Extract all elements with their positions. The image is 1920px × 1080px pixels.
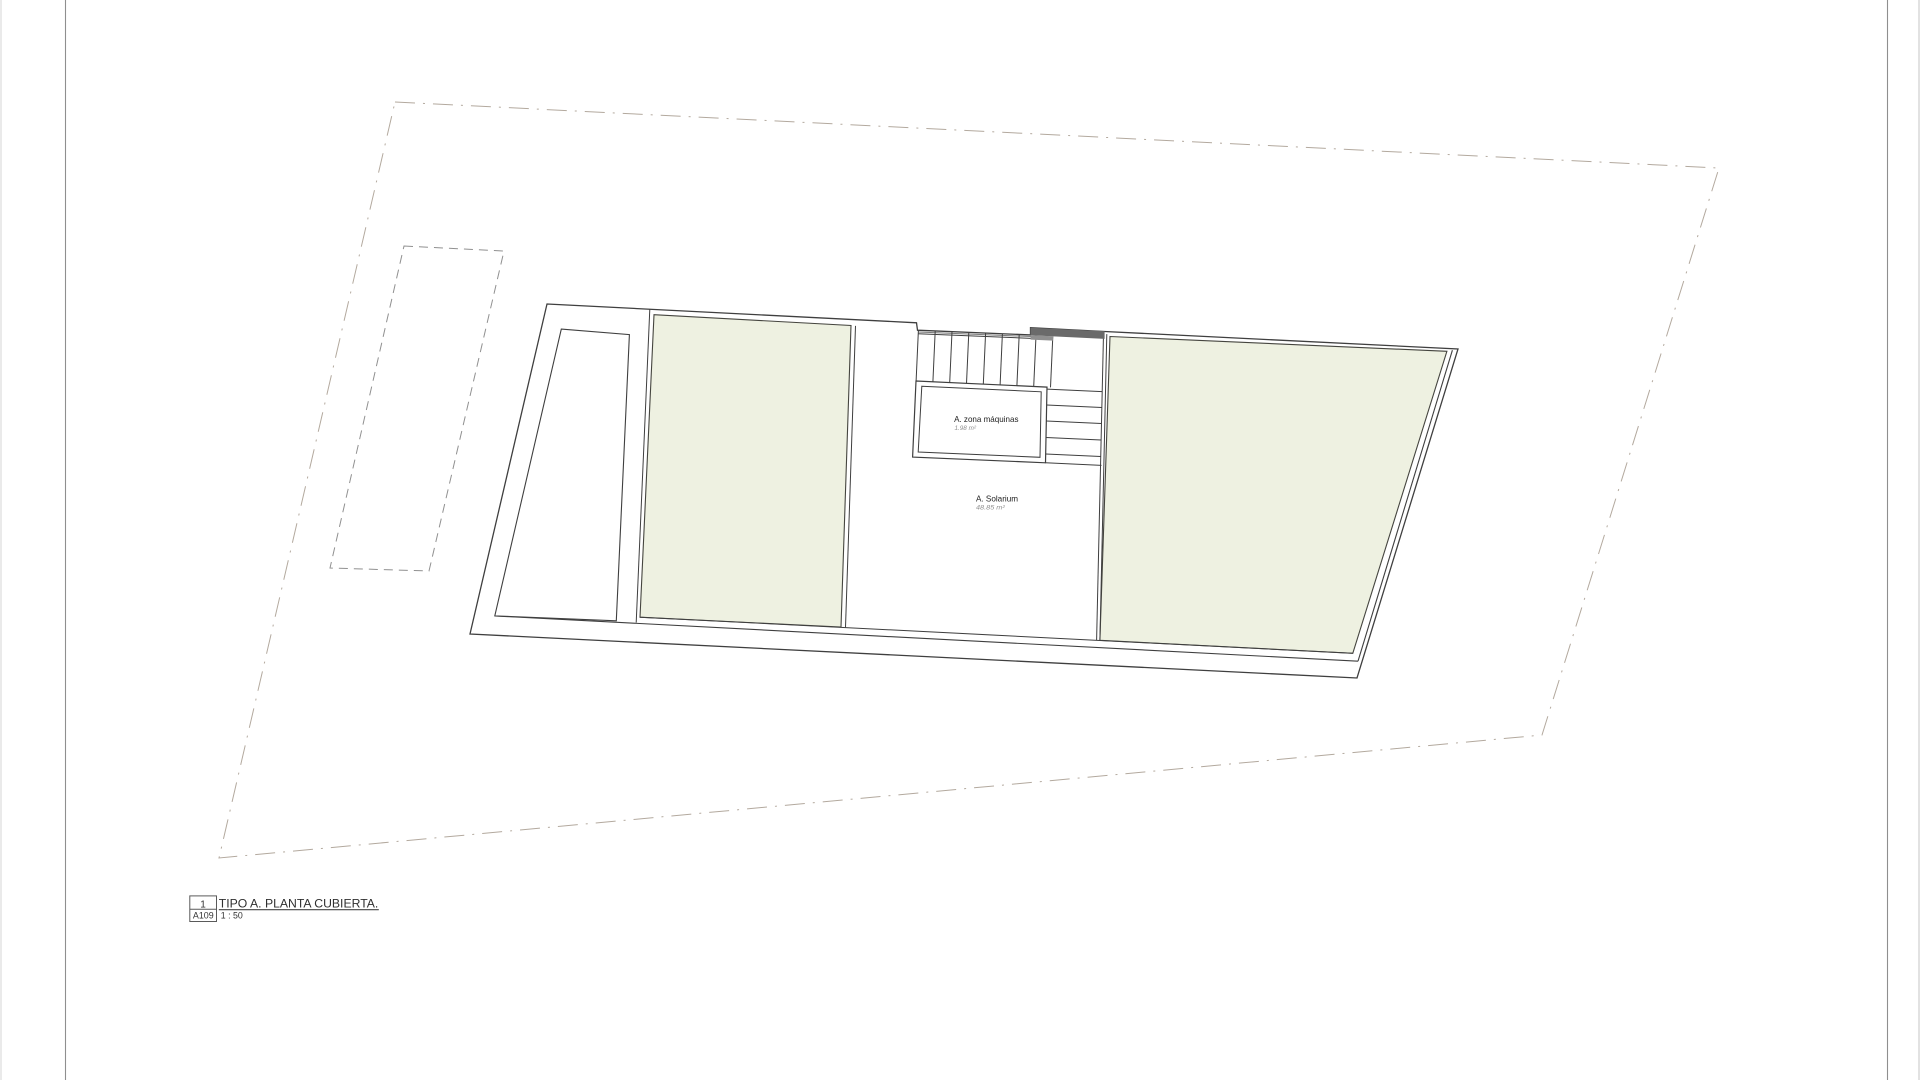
svg-text:1 : 50: 1 : 50 xyxy=(221,911,243,921)
svg-text:A109: A109 xyxy=(193,911,214,921)
svg-text:1.98 m²: 1.98 m² xyxy=(955,425,977,432)
svg-text:48.85 m²: 48.85 m² xyxy=(976,505,1006,512)
svg-text:1: 1 xyxy=(200,899,206,910)
svg-text:TIPO A. PLANTA CUBIERTA.: TIPO A. PLANTA CUBIERTA. xyxy=(219,898,378,911)
svg-text:A. Solarium: A. Solarium xyxy=(976,494,1018,504)
svg-text:A. zona máquinas: A. zona máquinas xyxy=(954,415,1018,424)
